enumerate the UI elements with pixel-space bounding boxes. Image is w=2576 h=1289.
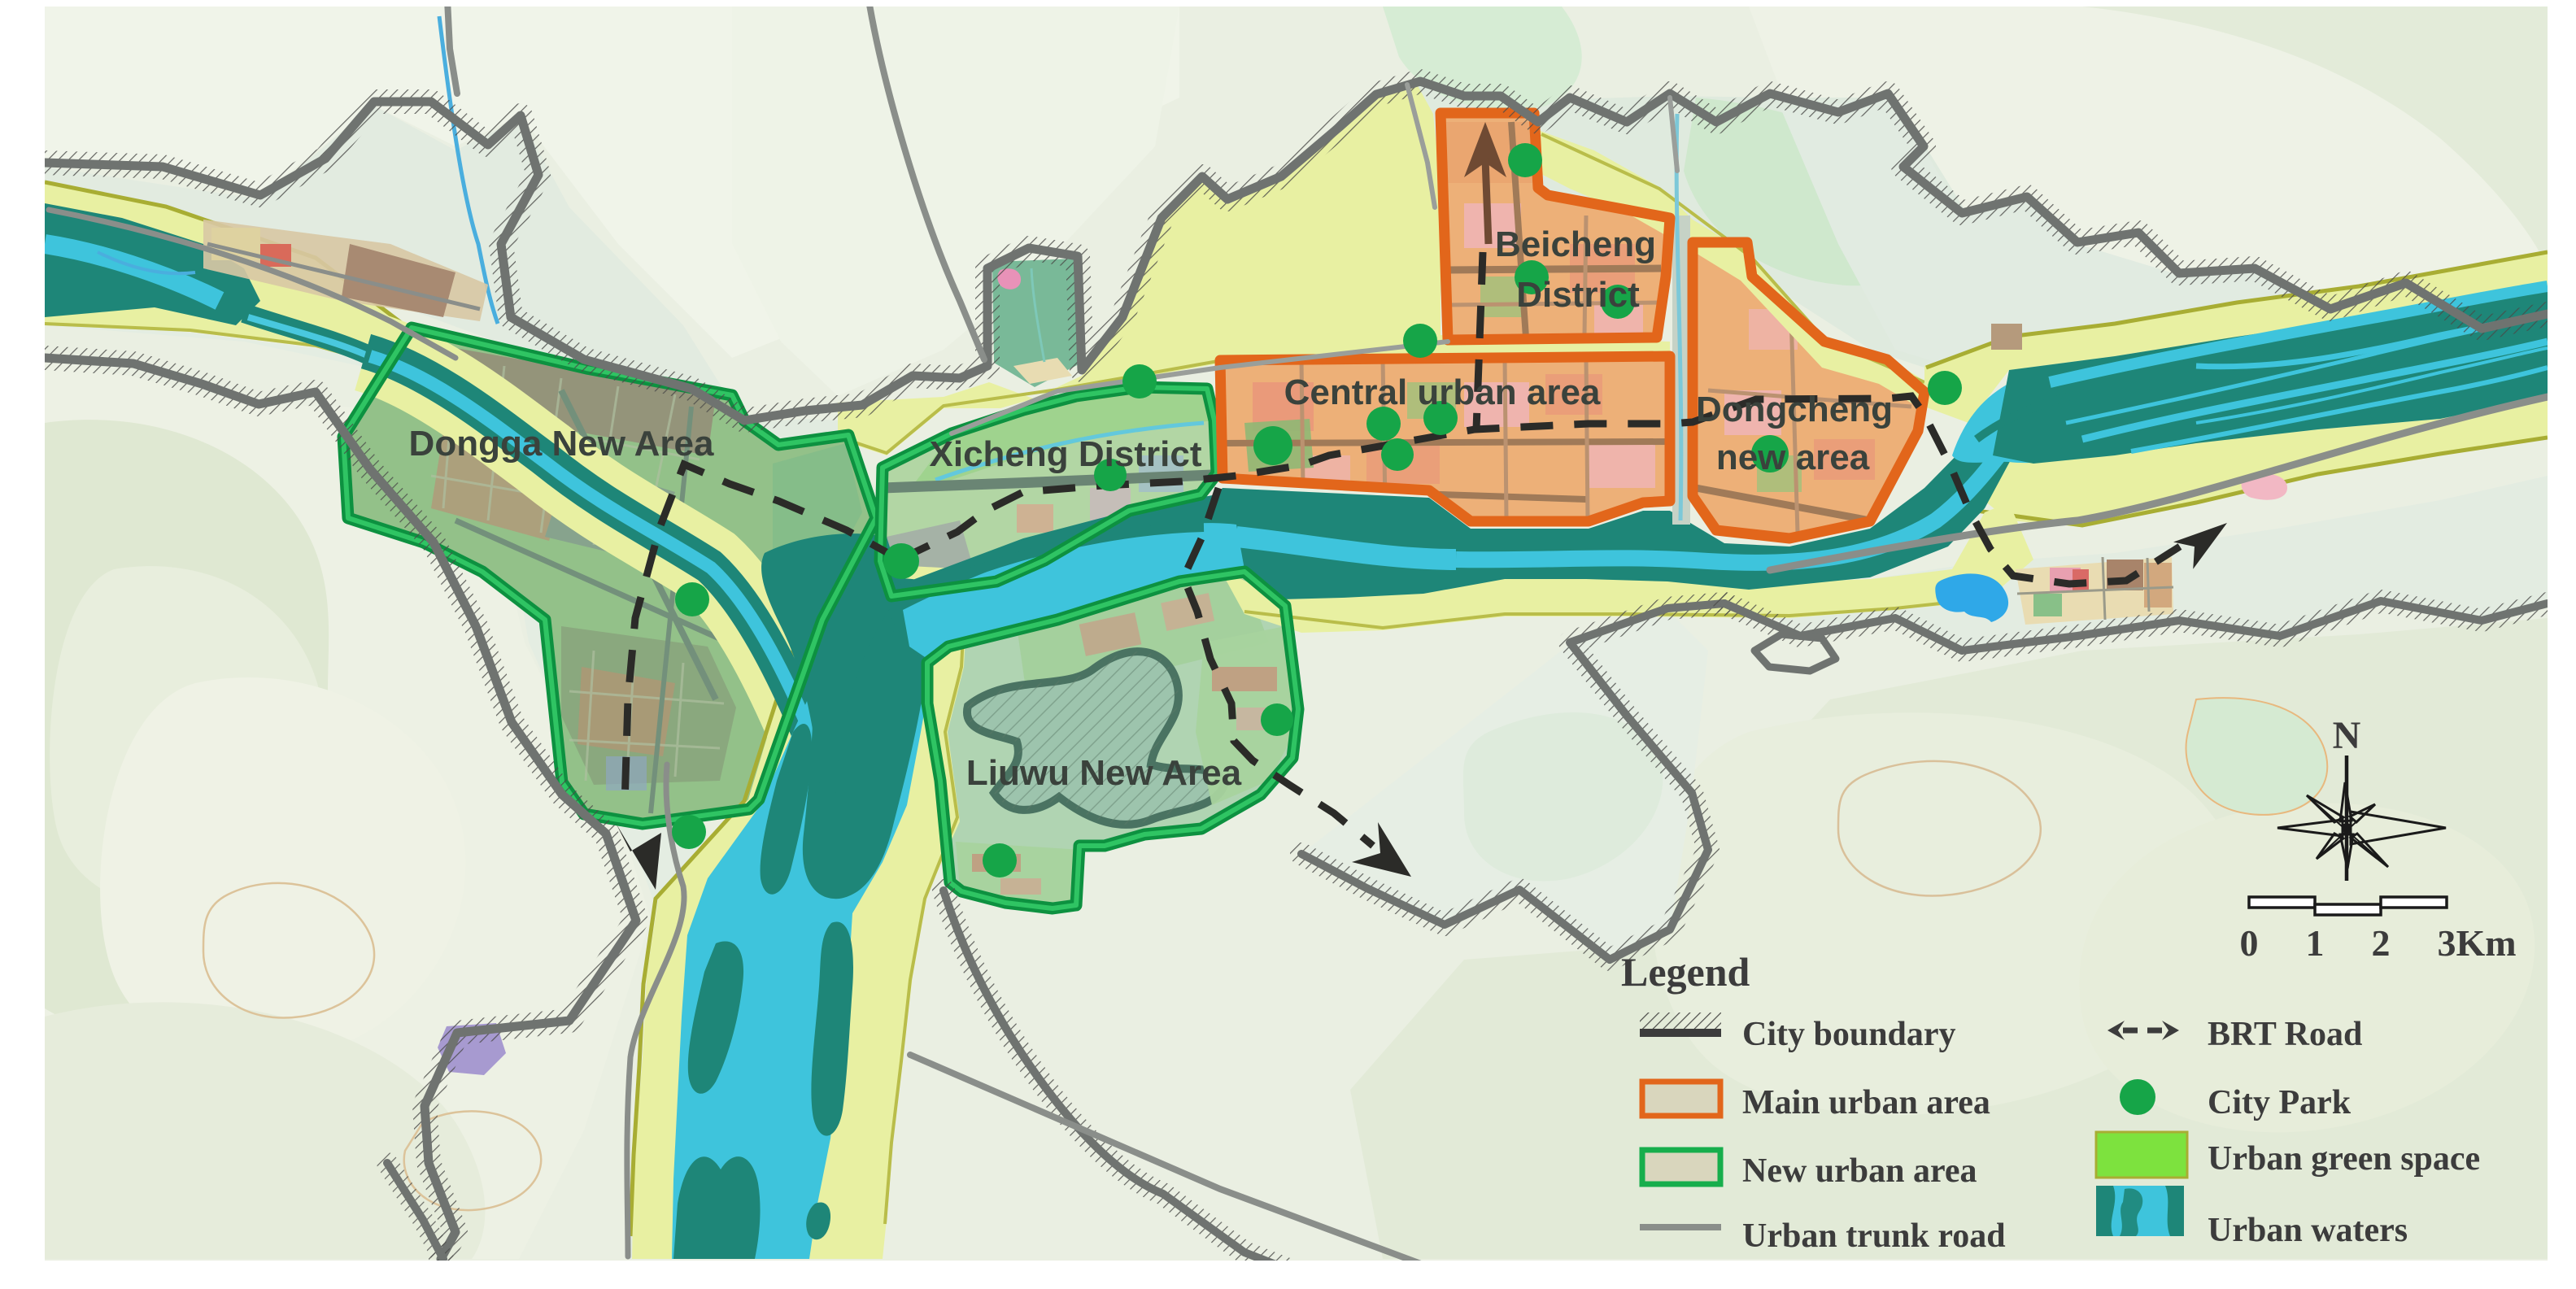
svg-text:N: N [2333, 714, 2361, 757]
svg-text:new area: new area [1716, 438, 1870, 477]
svg-text:Legend: Legend [1621, 949, 1750, 995]
svg-text:Dongcheng: Dongcheng [1696, 390, 1893, 429]
svg-text:Dongga New Area: Dongga New Area [409, 424, 714, 464]
svg-text:Xicheng District: Xicheng District [930, 434, 1202, 474]
svg-text:Beicheng: Beicheng [1495, 224, 1656, 264]
svg-text:City Park: City Park [2208, 1084, 2352, 1121]
svg-text:City boundary: City boundary [1742, 1016, 1956, 1053]
svg-text:Urban waters: Urban waters [2208, 1212, 2408, 1249]
svg-text:Urban trunk road: Urban trunk road [1742, 1217, 2006, 1255]
svg-text:District: District [1516, 275, 1640, 315]
svg-text:Central urban area: Central urban area [1284, 372, 1601, 412]
svg-text:Urban green space: Urban green space [2208, 1140, 2480, 1178]
svg-text:3Km: 3Km [2437, 922, 2516, 964]
svg-text:New urban area: New urban area [1742, 1152, 1977, 1190]
svg-text:BRT Road: BRT Road [2208, 1016, 2362, 1053]
svg-text:1: 1 [2306, 922, 2325, 964]
svg-text:Liuwu New Area: Liuwu New Area [966, 753, 1242, 793]
svg-text:Main urban area: Main urban area [1742, 1084, 1990, 1121]
svg-text:0: 0 [2240, 922, 2259, 964]
svg-text:2: 2 [2372, 922, 2391, 964]
